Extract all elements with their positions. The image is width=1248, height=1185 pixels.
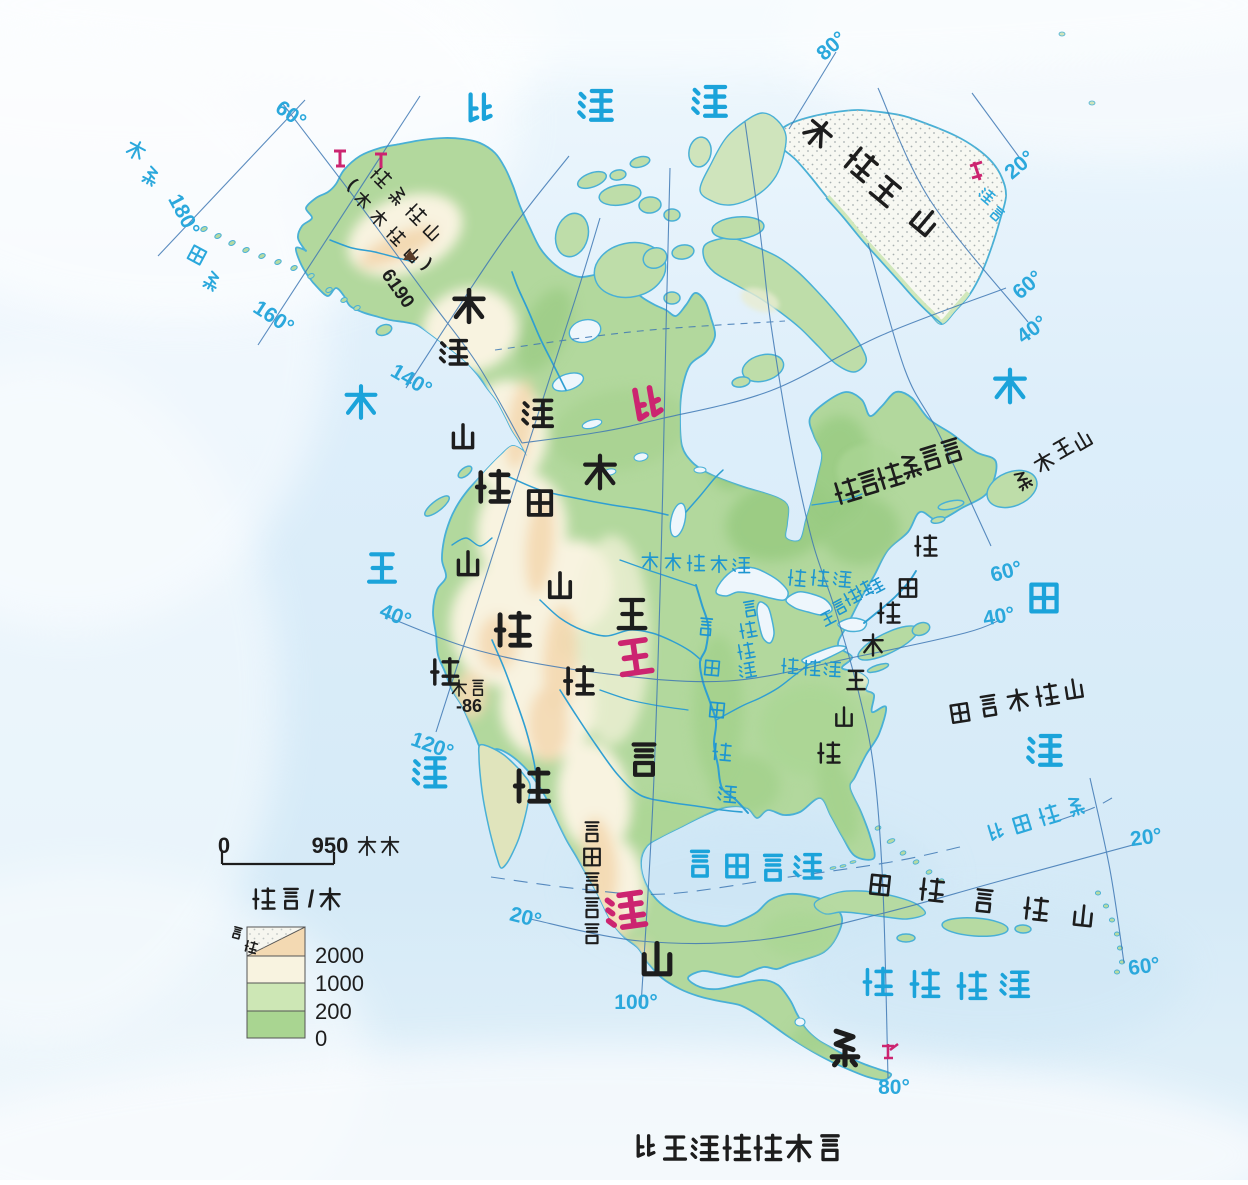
svg-text:1000: 1000 [315,971,364,996]
svg-text:950: 950 [312,833,349,858]
svg-text:60°: 60° [1127,953,1162,980]
svg-text:-86: -86 [456,696,482,716]
svg-text:/: / [308,886,315,913]
svg-text:20°: 20° [1129,824,1164,851]
svg-text:200: 200 [315,999,352,1024]
svg-text:0: 0 [315,1026,327,1051]
svg-text:2000: 2000 [315,943,364,968]
svg-text:80°: 80° [878,1076,910,1099]
svg-text:0: 0 [218,833,230,858]
svg-text:100°: 100° [614,991,657,1014]
